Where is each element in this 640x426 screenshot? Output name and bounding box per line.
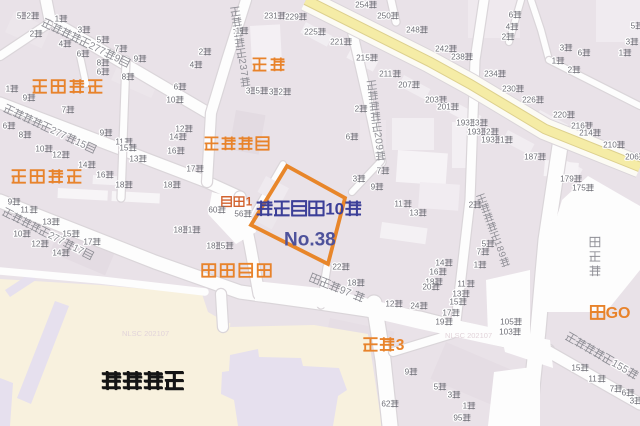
svg-text:3: 3 xyxy=(630,397,635,406)
svg-text:10: 10 xyxy=(325,199,344,218)
svg-text:7: 7 xyxy=(477,248,482,257)
svg-text:17: 17 xyxy=(442,309,452,318)
svg-text:4: 4 xyxy=(506,23,511,32)
svg-text:2: 2 xyxy=(26,12,31,21)
svg-text:16: 16 xyxy=(96,171,106,180)
svg-text:17: 17 xyxy=(83,238,93,247)
svg-text:9: 9 xyxy=(405,368,410,377)
svg-text:103: 103 xyxy=(499,328,513,337)
svg-text:7: 7 xyxy=(115,45,120,54)
svg-text:1: 1 xyxy=(55,15,60,24)
svg-text:11: 11 xyxy=(457,280,466,289)
svg-text:1: 1 xyxy=(500,136,505,145)
svg-text:8: 8 xyxy=(97,59,102,68)
svg-text:16: 16 xyxy=(429,268,439,277)
svg-text:221: 221 xyxy=(330,38,344,47)
svg-text:2: 2 xyxy=(502,33,507,42)
svg-text:3: 3 xyxy=(626,38,631,47)
svg-text:16: 16 xyxy=(167,147,177,156)
svg-text:2: 2 xyxy=(355,105,360,114)
svg-text:210: 210 xyxy=(603,141,617,150)
svg-text:15: 15 xyxy=(119,144,129,153)
svg-text:13: 13 xyxy=(129,155,139,164)
svg-text:3: 3 xyxy=(475,119,480,128)
svg-text:5: 5 xyxy=(17,12,22,21)
svg-text:242: 242 xyxy=(435,45,449,54)
svg-text:5: 5 xyxy=(255,87,260,96)
svg-text:6: 6 xyxy=(346,133,351,142)
svg-text:56: 56 xyxy=(234,210,244,219)
svg-text:12: 12 xyxy=(31,240,41,249)
svg-text:238: 238 xyxy=(451,53,465,62)
svg-text:13: 13 xyxy=(409,209,419,218)
svg-text:4: 4 xyxy=(190,61,195,70)
svg-text:NLSC 202107: NLSC 202107 xyxy=(122,329,169,338)
svg-text:211: 211 xyxy=(379,70,392,79)
svg-text:5: 5 xyxy=(221,242,226,251)
svg-text:6: 6 xyxy=(622,389,627,398)
svg-text:226: 226 xyxy=(522,96,536,105)
svg-text:9: 9 xyxy=(371,183,376,192)
svg-text:1: 1 xyxy=(6,85,11,94)
svg-text:3: 3 xyxy=(448,391,453,400)
svg-text:15: 15 xyxy=(449,298,459,307)
svg-text:12: 12 xyxy=(52,151,62,160)
svg-text:20: 20 xyxy=(422,283,432,292)
svg-text:7: 7 xyxy=(610,385,615,394)
svg-text:7: 7 xyxy=(377,167,382,176)
svg-text:60: 60 xyxy=(208,206,218,215)
svg-text:8: 8 xyxy=(19,131,24,140)
svg-text:14: 14 xyxy=(78,161,88,170)
svg-text:1: 1 xyxy=(552,57,557,66)
svg-text:234: 234 xyxy=(484,70,498,79)
svg-text:187: 187 xyxy=(524,153,538,162)
svg-text:2: 2 xyxy=(278,88,283,97)
svg-text:NLSC 202107: NLSC 202107 xyxy=(445,331,492,340)
svg-text:6: 6 xyxy=(77,50,82,59)
svg-text:2: 2 xyxy=(199,48,204,57)
svg-text:11: 11 xyxy=(588,375,597,384)
svg-text:18: 18 xyxy=(207,242,217,251)
svg-text:13: 13 xyxy=(42,218,52,227)
svg-text:193: 193 xyxy=(481,136,495,145)
svg-text:4: 4 xyxy=(59,40,64,49)
svg-text:15: 15 xyxy=(62,230,72,239)
svg-text:1: 1 xyxy=(236,27,241,36)
svg-text:250: 250 xyxy=(377,12,391,21)
svg-text:3: 3 xyxy=(560,44,565,53)
svg-text:9: 9 xyxy=(8,198,13,207)
svg-text:3: 3 xyxy=(246,87,251,96)
svg-text:5: 5 xyxy=(482,240,487,249)
svg-text:7: 7 xyxy=(62,106,67,115)
svg-text:6: 6 xyxy=(3,122,8,131)
svg-text:214: 214 xyxy=(579,129,593,138)
svg-text:9: 9 xyxy=(134,55,139,64)
svg-text:6: 6 xyxy=(578,49,583,58)
svg-text:207: 207 xyxy=(398,81,412,90)
svg-text:231: 231 xyxy=(264,12,278,21)
svg-text:22: 22 xyxy=(332,263,342,272)
svg-text:9: 9 xyxy=(100,129,105,138)
svg-text:95: 95 xyxy=(453,414,463,423)
svg-text:3: 3 xyxy=(269,88,274,97)
svg-text:1: 1 xyxy=(619,49,624,58)
svg-text:1: 1 xyxy=(188,226,193,235)
svg-text:6: 6 xyxy=(509,11,514,20)
svg-text:248: 248 xyxy=(406,26,420,35)
svg-text:3: 3 xyxy=(353,175,358,184)
svg-text:10: 10 xyxy=(166,96,176,105)
svg-text:14: 14 xyxy=(169,133,179,142)
svg-text:17: 17 xyxy=(186,165,196,174)
svg-text:19: 19 xyxy=(435,318,445,327)
svg-text:229: 229 xyxy=(285,13,299,22)
svg-text:175: 175 xyxy=(572,184,586,193)
svg-text:15: 15 xyxy=(571,364,581,373)
svg-text:225: 225 xyxy=(304,28,318,37)
svg-text:6: 6 xyxy=(174,83,179,92)
svg-text:18: 18 xyxy=(115,181,125,190)
svg-text:18: 18 xyxy=(347,279,357,288)
svg-text:2: 2 xyxy=(469,201,474,210)
svg-text:10: 10 xyxy=(35,145,45,154)
svg-text:24: 24 xyxy=(410,302,420,311)
svg-text:215: 215 xyxy=(356,54,370,63)
svg-text:5: 5 xyxy=(97,36,102,45)
svg-text:254: 254 xyxy=(355,1,369,10)
svg-text:No.38: No.38 xyxy=(284,230,336,251)
svg-text:11: 11 xyxy=(394,200,403,209)
svg-text:12: 12 xyxy=(385,300,395,309)
svg-text:8: 8 xyxy=(122,73,127,82)
svg-text:9: 9 xyxy=(23,94,28,103)
svg-text:18: 18 xyxy=(174,226,184,235)
svg-text:14: 14 xyxy=(435,259,445,268)
svg-text:105: 105 xyxy=(500,318,514,327)
svg-text:1: 1 xyxy=(474,261,479,270)
svg-text:62: 62 xyxy=(381,400,391,409)
svg-text:6: 6 xyxy=(97,68,102,77)
svg-text:201: 201 xyxy=(437,103,451,112)
svg-text:3: 3 xyxy=(78,26,83,35)
svg-text:10: 10 xyxy=(13,230,23,239)
svg-text:206: 206 xyxy=(625,153,639,162)
svg-text:230: 230 xyxy=(502,85,516,94)
svg-text:179: 179 xyxy=(560,175,574,184)
svg-text:193: 193 xyxy=(456,119,470,128)
svg-text:14: 14 xyxy=(52,249,62,258)
svg-text:193: 193 xyxy=(467,128,481,137)
svg-text:2: 2 xyxy=(568,66,573,75)
svg-text:11: 11 xyxy=(20,206,29,215)
svg-text:2: 2 xyxy=(30,30,35,39)
svg-text:1: 1 xyxy=(463,402,468,411)
svg-text:GO: GO xyxy=(606,305,631,322)
svg-text:3: 3 xyxy=(396,337,405,354)
svg-text:5: 5 xyxy=(631,22,636,31)
svg-text:5: 5 xyxy=(434,383,439,392)
svg-text:18: 18 xyxy=(163,181,173,190)
svg-text:220: 220 xyxy=(553,111,567,120)
svg-text:1: 1 xyxy=(246,197,253,209)
